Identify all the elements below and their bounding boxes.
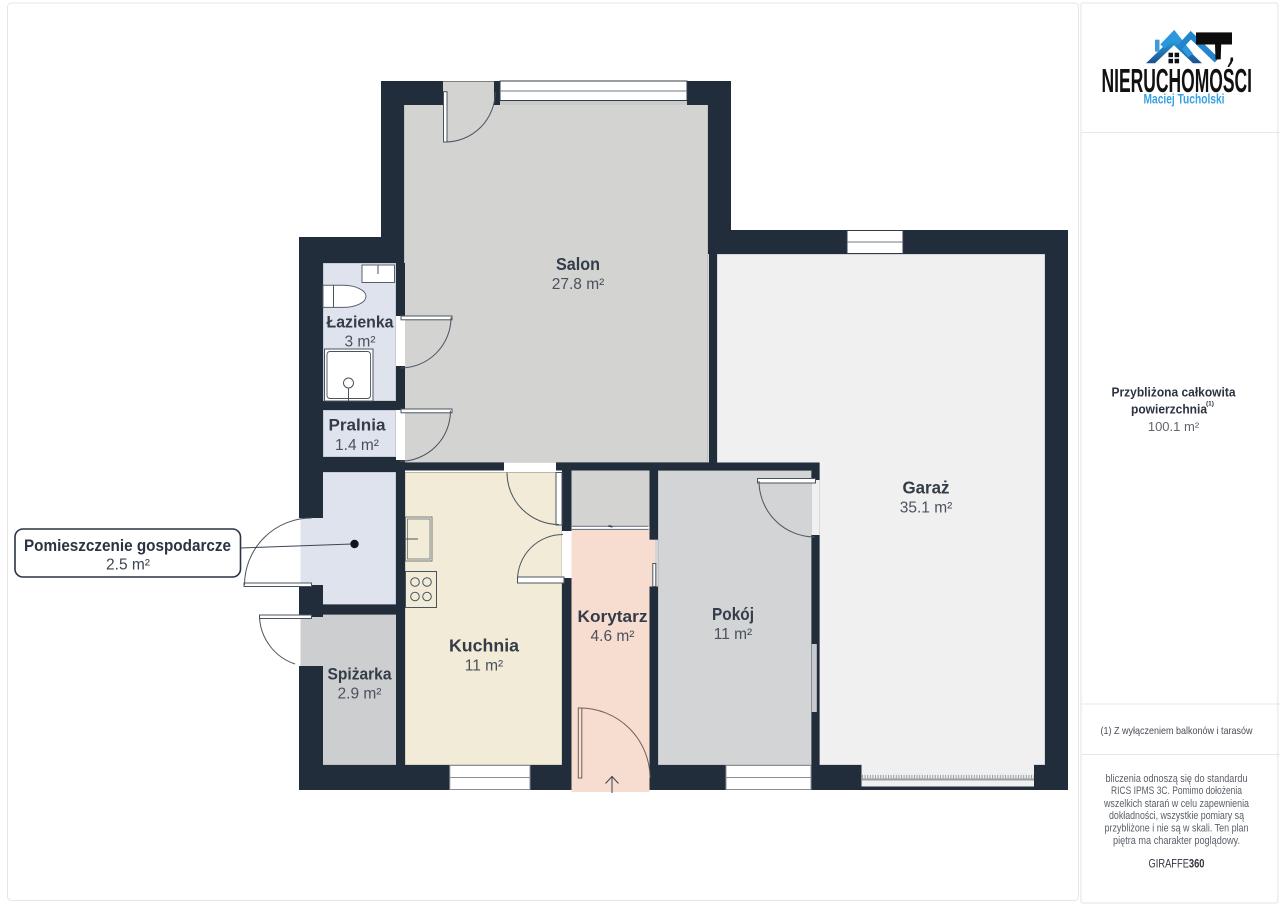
svg-text:2.9 m²: 2.9 m²	[338, 686, 382, 703]
svg-text:Pokój: Pokój	[712, 604, 754, 624]
svg-text:Łazienka: Łazienka	[327, 313, 395, 332]
svg-text:piętra ma charakter poglądowy.: piętra ma charakter poglądowy.	[1113, 835, 1240, 847]
svg-text:powierzchnia: powierzchnia	[1131, 402, 1208, 417]
svg-text:35.1 m²: 35.1 m²	[900, 500, 953, 517]
svg-text:4.6 m²: 4.6 m²	[591, 628, 635, 645]
svg-text:dokładności, wszystkie pomiary: dokładności, wszystkie pomiary są	[1109, 810, 1244, 822]
svg-text:Pralnia: Pralnia	[329, 416, 387, 435]
svg-text:Garaż: Garaż	[903, 478, 950, 498]
svg-text:przybliżone i nie są w skali.: przybliżone i nie są w skali. Ten plan	[1105, 823, 1249, 835]
svg-text:1.4 m²: 1.4 m²	[335, 437, 379, 454]
svg-text:(1) Z wyłączeniem balkonów i t: (1) Z wyłączeniem balkonów i tarasów	[1101, 725, 1253, 737]
svg-text:3 m²: 3 m²	[345, 334, 376, 351]
svg-text:Pomieszczenie gospodarcze: Pomieszczenie gospodarcze	[24, 537, 231, 555]
svg-text:Korytarz: Korytarz	[578, 607, 648, 626]
svg-text:Spiżarka: Spiżarka	[328, 665, 392, 684]
svg-text:RICS IPMS 3C. Pomimo dołożenia: RICS IPMS 3C. Pomimo dołożenia	[1111, 785, 1242, 797]
svg-text:2.5 m²: 2.5 m²	[106, 557, 150, 574]
svg-text:bliczenia odnoszą się do stand: bliczenia odnoszą się do standardu	[1106, 773, 1248, 785]
svg-text:Maciej Tucholski: Maciej Tucholski	[1144, 91, 1225, 106]
svg-text:GIRAFFE360: GIRAFFE360	[1149, 859, 1205, 871]
svg-text:Kuchnia: Kuchnia	[449, 636, 519, 656]
svg-text:100.1 m²: 100.1 m²	[1148, 419, 1200, 434]
svg-text:27.8 m²: 27.8 m²	[552, 276, 605, 293]
svg-text:11 m²: 11 m²	[465, 658, 503, 675]
svg-text:wszelkich starań w celu zapewn: wszelkich starań w celu zapewnienia	[1103, 798, 1249, 810]
svg-text:Salon: Salon	[556, 254, 600, 274]
svg-text:Przybliżona całkowita: Przybliżona całkowita	[1112, 385, 1237, 400]
svg-text:11 m²: 11 m²	[714, 626, 752, 643]
svg-text:(1): (1)	[1206, 401, 1214, 408]
